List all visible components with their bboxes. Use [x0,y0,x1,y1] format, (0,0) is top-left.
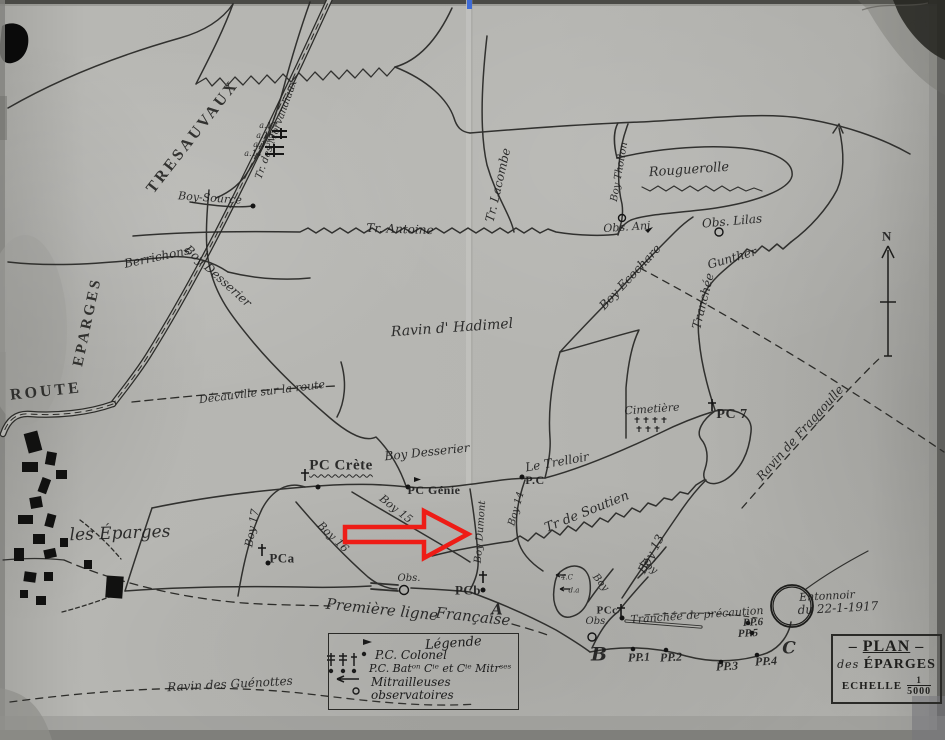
label-point-c: C [782,641,796,658]
label-point-a: A [491,603,503,618]
label-boy16: Boy 16 [315,520,350,555]
map-scale: ECHELLE15000 [833,676,940,697]
label-pp5: PP.5 [738,628,759,640]
label-route: ROUTE [9,380,82,403]
legend-item-pc-bataillon: P.C. Batᵒⁿ Cⁱᵉ et Cⁱᵉ Mitrˢᵉˢ [369,662,511,675]
label-boy-desserier-nw: Boy Desserier [182,243,253,309]
map-subtitle: des ÉPARGES [833,657,940,673]
label-obs-b: Obs. [586,617,609,627]
label-obs-lilas: Obs. Lilas [701,212,762,229]
label-a15: a.15 [253,141,271,149]
label-entonnoir-2: du 22-1-1917 [797,600,878,616]
map-labels-layer: TRESAUVAUXEPARGESROUTEBerrichonsBoy Dess… [0,0,945,740]
label-pc-genie: PC Génie [408,484,461,496]
label-boy14: Boy 14 [507,491,526,527]
label-4c: 4.C [561,575,573,582]
label-gunther: Gunther [706,245,758,270]
label-ravin-guenottes: Ravin des Guénottes [167,675,293,694]
label-decauville: Décauville sur la route [198,379,325,405]
label-berrichons: Berrichons [123,244,191,270]
label-cimetiere: Cimetière [624,402,680,417]
label-a17: a.17 [259,122,277,130]
label-point-b: B [591,646,607,665]
label-pcb: PCb [455,584,481,597]
label-pp6: PP.6 [743,617,764,629]
label-obs-ani: Obs. Ani [603,220,651,234]
label-ravin-fragaoulle: Ravin de Fragaoulle [754,383,845,482]
label-rouguerolle: Rouguerolle [648,161,729,180]
label-boy-thollon: Boy Thollon [610,141,630,202]
label-a14: a.14 [244,150,262,158]
map-canvas: TRESAUVAUXEPARGESROUTEBerrichonsBoy Dess… [0,0,945,740]
label-pcc: PCc [596,606,617,617]
map-title: – PLAN – [833,638,940,656]
label-tr-morvandiaux: Tr. des Morvandiaux [255,79,300,180]
label-boy-dumont: Boy Dumont [474,500,488,563]
label-les-eparges: les Éparges [69,524,170,545]
legend-item-pc-colonel: P.C. Colonel [375,648,447,662]
label-pc: P.C [525,474,544,486]
label-pca: PCa [269,552,294,565]
label-pc7: PC 7 [716,408,747,422]
label-ravin-hadimel: Ravin d' Hadimel [390,317,513,340]
label-pp1: PP.1 [628,650,651,663]
label-tresauvaux: TRESAUVAUX [144,77,242,196]
label-le-trelloir: Le Trelloir [524,451,589,474]
label-north-n: N [882,230,892,243]
label-pc-crete: PC Crète [309,459,373,474]
label-boy-ecochare: Boy Ecochare [597,242,663,311]
label-page-number: 27 [906,11,935,39]
label-boy15: Boy 15 [377,493,414,525]
legend-item-mitrailleuses: Mitrailleuses [371,675,451,689]
label-pp2: PP.2 [660,650,683,663]
label-premiere-ligne: Première ligne [325,597,439,624]
label-pp4: PP.4 [755,654,778,667]
legend-box: Légende P.C. Colonel P.C. Batᵒⁿ Cⁱᵉ et C… [328,633,519,710]
label-da: d.a [569,588,580,595]
label-tranchee-gunther: Tranchée [690,272,716,330]
label-boy-b1: Boy [590,572,610,593]
label-obs-center: Obs. [398,574,421,584]
label-pp3: PP.3 [716,659,739,672]
title-box: – PLAN – des ÉPARGES ECHELLE15000 [831,634,942,704]
label-tr-antoine: Tr. Antoine [366,222,434,236]
label-tr-lacombe: Tr. Lacombe [484,147,513,223]
label-a16: a.16 [256,132,274,140]
label-eparges-road: EPARGES [71,276,105,368]
legend-item-observatoires: observatoires [371,688,454,702]
label-boy17: Boy 17 [243,508,261,548]
label-boy-desserier-center: Boy Desserier [384,442,470,463]
label-boy-source: Boy-Source [178,190,242,205]
label-tr-soutien: Tr de Soutien [543,489,631,535]
